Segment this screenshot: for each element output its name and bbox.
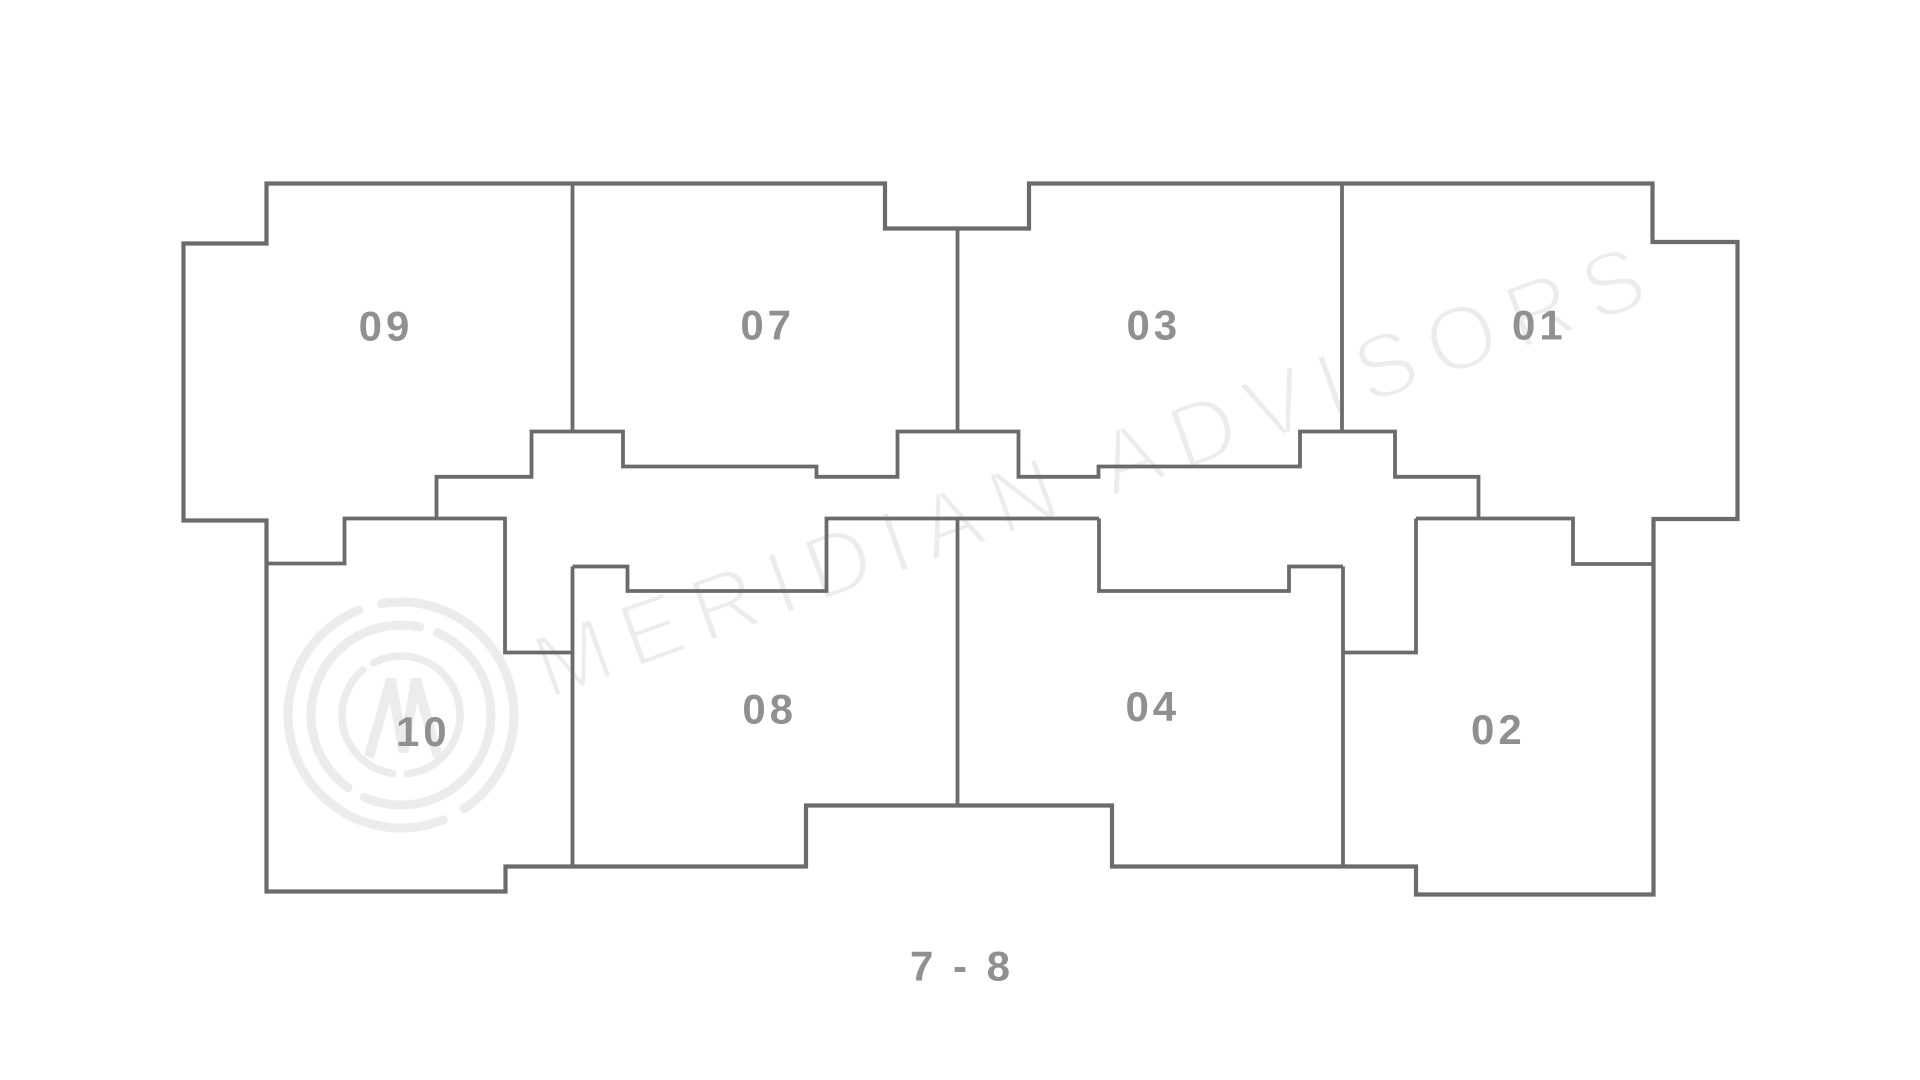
svg-text:04: 04 bbox=[1125, 683, 1180, 730]
svg-text:02: 02 bbox=[1471, 706, 1526, 753]
svg-text:10: 10 bbox=[396, 708, 451, 755]
svg-text:09: 09 bbox=[359, 303, 414, 350]
svg-text:07: 07 bbox=[740, 302, 795, 349]
svg-text:01: 01 bbox=[1512, 302, 1567, 349]
svg-text:08: 08 bbox=[742, 686, 797, 733]
svg-text:7 - 8: 7 - 8 bbox=[910, 943, 1014, 990]
svg-text:03: 03 bbox=[1126, 302, 1181, 349]
